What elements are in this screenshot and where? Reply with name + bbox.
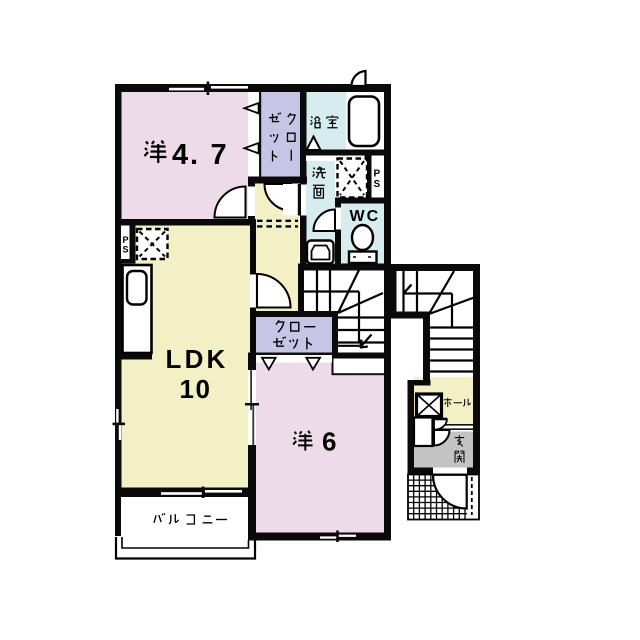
svg-text:P: P — [374, 169, 381, 180]
svg-text:6: 6 — [322, 427, 336, 457]
svg-text:7: 7 — [211, 139, 227, 171]
svg-text:P: P — [123, 235, 129, 245]
svg-text:S: S — [123, 245, 129, 255]
svg-text:10: 10 — [180, 374, 212, 404]
svg-text:4: 4 — [172, 139, 188, 171]
svg-text:.: . — [190, 139, 198, 171]
svg-text:WC: WC — [350, 208, 381, 225]
svg-text:S: S — [374, 179, 381, 190]
svg-text:LDK: LDK — [166, 344, 229, 374]
